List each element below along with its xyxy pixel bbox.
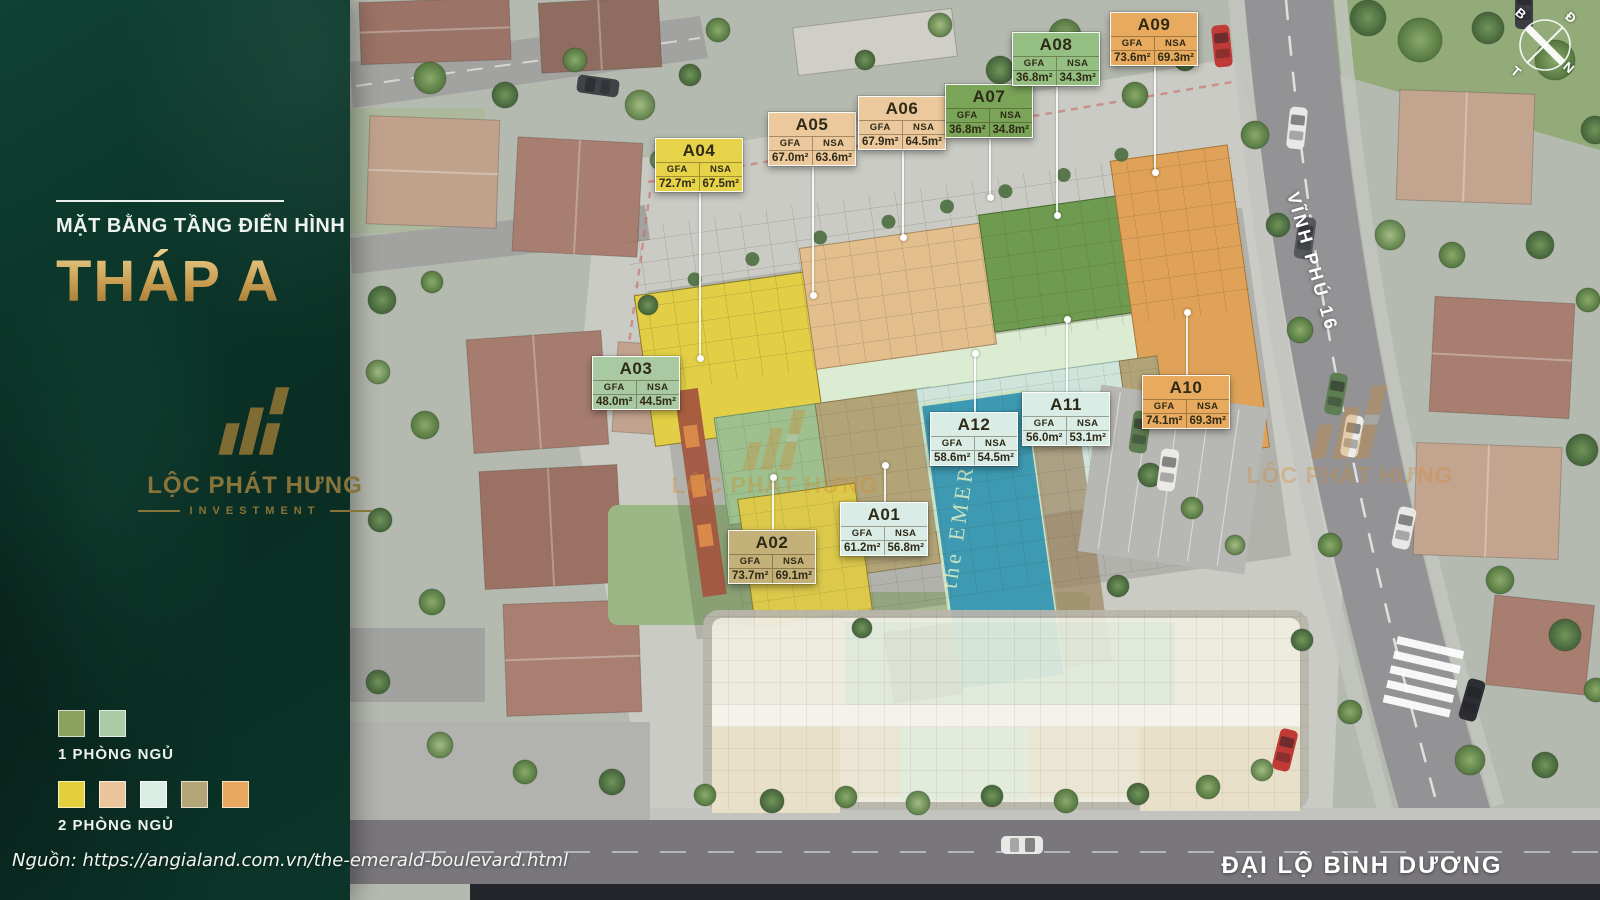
legend-swatch (99, 710, 126, 737)
unit-area-headers: GFA NSA (931, 437, 1017, 451)
legend-swatch (222, 781, 249, 808)
unit-label-a04: A04 GFA NSA 72.7m² 67.5m² (655, 138, 743, 192)
unit-label-a01: A01 GFA NSA 61.2m² 56.8m² (840, 502, 928, 556)
sidebar: MẶT BẰNG TẦNG ĐIỂN HÌNH THÁP A LỘC PHÁT … (0, 0, 350, 900)
gfa-value: 48.0m² (593, 395, 636, 409)
leader-line-a02 (772, 478, 774, 530)
legend: 1 PHÒNG NGỦ 2 PHÒNG NGỦ (58, 710, 249, 852)
nsa-value: 67.5m² (699, 177, 743, 191)
gfa-header: GFA (593, 381, 636, 394)
gfa-header: GFA (1023, 417, 1066, 430)
unit-id: A08 (1013, 33, 1099, 57)
nsa-header: NSA (812, 137, 856, 150)
nsa-header: NSA (772, 555, 816, 568)
leader-line-a04 (699, 193, 701, 358)
gfa-value: 73.7m² (729, 569, 772, 583)
nsa-value: 56.8m² (884, 541, 928, 555)
gfa-value: 67.0m² (769, 151, 812, 165)
gfa-value: 36.8m² (946, 123, 989, 137)
gfa-header: GFA (1013, 57, 1056, 70)
unit-label-a05: A05 GFA NSA 67.0m² 63.6m² (768, 112, 856, 166)
gfa-header: GFA (931, 437, 974, 450)
legend-swatch (58, 710, 85, 737)
nsa-header: NSA (1066, 417, 1110, 430)
nsa-header: NSA (1186, 400, 1230, 413)
legend-swatches-1br (58, 710, 249, 737)
unit-id: A09 (1111, 13, 1197, 37)
unit-label-a11: A11 GFA NSA 56.0m² 53.1m² (1022, 392, 1110, 446)
nsa-header: NSA (902, 121, 946, 134)
gfa-header: GFA (729, 555, 772, 568)
unit-id: A01 (841, 503, 927, 527)
unit-area-headers: GFA NSA (656, 163, 742, 177)
source-attribution: Nguồn: https://angialand.com.vn/the-emer… (12, 850, 568, 871)
leader-line-a12 (974, 354, 976, 412)
unit-area-values: 67.0m² 63.6m² (769, 151, 855, 165)
nsa-value: 64.5m² (902, 135, 946, 149)
compass-rose: B Đ T N (1508, 8, 1582, 82)
unit-label-a08: A08 GFA NSA 36.8m² 34.3m² (1012, 32, 1100, 86)
nsa-header: NSA (1154, 37, 1198, 50)
unit-area-headers: GFA NSA (1111, 37, 1197, 51)
gfa-header: GFA (1143, 400, 1186, 413)
gfa-header: GFA (656, 163, 699, 176)
nsa-value: 63.6m² (812, 151, 856, 165)
unit-area-values: 74.1m² 69.3m² (1143, 414, 1229, 428)
nsa-header: NSA (699, 163, 743, 176)
unit-label-a12: A12 GFA NSA 58.6m² 54.5m² (930, 412, 1018, 466)
gfa-value: 58.6m² (931, 451, 974, 465)
unit-area-headers: GFA NSA (593, 381, 679, 395)
unit-label-a06: A06 GFA NSA 67.9m² 64.5m² (858, 96, 946, 150)
legend-label-2br: 2 PHÒNG NGỦ (58, 817, 249, 834)
leader-line-a08 (1056, 87, 1058, 215)
leader-line-a05 (812, 167, 814, 295)
gfa-value: 36.8m² (1013, 71, 1056, 85)
legend-swatch (58, 781, 85, 808)
unit-area-values: 56.0m² 53.1m² (1023, 431, 1109, 445)
gfa-header: GFA (859, 121, 902, 134)
gfa-value: 67.9m² (859, 135, 902, 149)
unit-area-headers: GFA NSA (1023, 417, 1109, 431)
unit-label-a09: A09 GFA NSA 73.6m² 69.3m² (1110, 12, 1198, 66)
gfa-header: GFA (946, 109, 989, 122)
nsa-value: 69.3m² (1186, 414, 1230, 428)
gfa-value: 61.2m² (841, 541, 884, 555)
leader-line-a06 (902, 151, 904, 237)
plan-subtitle: MẶT BẰNG TẦNG ĐIỂN HÌNH (56, 215, 345, 238)
legend-swatches-2br (58, 781, 249, 808)
nsa-value: 34.3m² (1056, 71, 1100, 85)
gfa-value: 73.6m² (1111, 51, 1154, 65)
unit-area-headers: GFA NSA (729, 555, 815, 569)
unit-area-headers: GFA NSA (769, 137, 855, 151)
unit-id: A11 (1023, 393, 1109, 417)
unit-label-a03: A03 GFA NSA 48.0m² 44.5m² (592, 356, 680, 410)
gfa-value: 56.0m² (1023, 431, 1066, 445)
unit-area-headers: GFA NSA (1143, 400, 1229, 414)
unit-label-a02: A02 GFA NSA 73.7m² 69.1m² (728, 530, 816, 584)
unit-id: A02 (729, 531, 815, 555)
unit-area-headers: GFA NSA (1013, 57, 1099, 71)
unit-area-values: 61.2m² 56.8m² (841, 541, 927, 555)
nsa-header: NSA (989, 109, 1033, 122)
unit-label-a10: A10 GFA NSA 74.1m² 69.3m² (1142, 375, 1230, 429)
unit-area-values: 72.7m² 67.5m² (656, 177, 742, 191)
unit-id: A05 (769, 113, 855, 137)
gfa-header: GFA (769, 137, 812, 150)
nsa-header: NSA (1056, 57, 1100, 70)
unit-area-values: 36.8m² 34.8m² (946, 123, 1032, 137)
unit-id: A07 (946, 85, 1032, 109)
unit-area-values: 58.6m² 54.5m² (931, 451, 1017, 465)
legend-group-1br: 1 PHÒNG NGỦ (58, 710, 249, 763)
nsa-value: 69.1m² (772, 569, 816, 583)
site-plan-page: LỘC PHÁT HƯNG LỘC PHÁT HƯNG VĨNH PHÚ 16 … (0, 0, 1600, 900)
leader-line-a10 (1186, 313, 1188, 375)
developer-name: LỘC PHÁT HƯNG (105, 472, 405, 500)
nsa-header: NSA (974, 437, 1018, 450)
unit-area-values: 73.7m² 69.1m² (729, 569, 815, 583)
legend-group-2br: 2 PHÒNG NGỦ (58, 781, 249, 834)
unit-id: A06 (859, 97, 945, 121)
unit-area-values: 48.0m² 44.5m² (593, 395, 679, 409)
nsa-header: NSA (636, 381, 680, 394)
developer-logo: LỘC PHÁT HƯNG INVESTMENT (105, 385, 405, 517)
unit-id: A10 (1143, 376, 1229, 400)
unit-area-headers: GFA NSA (841, 527, 927, 541)
unit-area-values: 73.6m² 69.3m² (1111, 51, 1197, 65)
legend-swatch (140, 781, 167, 808)
unit-id: A03 (593, 357, 679, 381)
nsa-header: NSA (884, 527, 928, 540)
developer-logo-icon (203, 385, 307, 457)
nsa-value: 54.5m² (974, 451, 1018, 465)
unit-area-values: 67.9m² 64.5m² (859, 135, 945, 149)
gfa-value: 74.1m² (1143, 414, 1186, 428)
tower-title: THÁP A (56, 248, 345, 315)
legend-swatch (181, 781, 208, 808)
leader-line-a11 (1066, 320, 1068, 392)
nsa-value: 53.1m² (1066, 431, 1110, 445)
gfa-value: 72.7m² (656, 177, 699, 191)
title-block: MẶT BẰNG TẦNG ĐIỂN HÌNH THÁP A (56, 200, 345, 315)
nsa-value: 34.8m² (989, 123, 1033, 137)
unit-id: A04 (656, 139, 742, 163)
legend-label-1br: 1 PHÒNG NGỦ (58, 746, 249, 763)
developer-tagline: INVESTMENT (105, 505, 405, 517)
unit-label-a07: A07 GFA NSA 36.8m² 34.8m² (945, 84, 1033, 138)
leader-line-a01 (884, 466, 886, 502)
leader-line-a07 (989, 139, 991, 197)
unit-area-headers: GFA NSA (946, 109, 1032, 123)
unit-id: A12 (931, 413, 1017, 437)
unit-area-values: 36.8m² 34.3m² (1013, 71, 1099, 85)
legend-swatch (99, 781, 126, 808)
gfa-header: GFA (841, 527, 884, 540)
unit-area-headers: GFA NSA (859, 121, 945, 135)
nsa-value: 44.5m² (636, 395, 680, 409)
leader-line-a09 (1154, 67, 1156, 172)
gfa-header: GFA (1111, 37, 1154, 50)
nsa-value: 69.3m² (1154, 51, 1198, 65)
title-rule (56, 200, 284, 202)
